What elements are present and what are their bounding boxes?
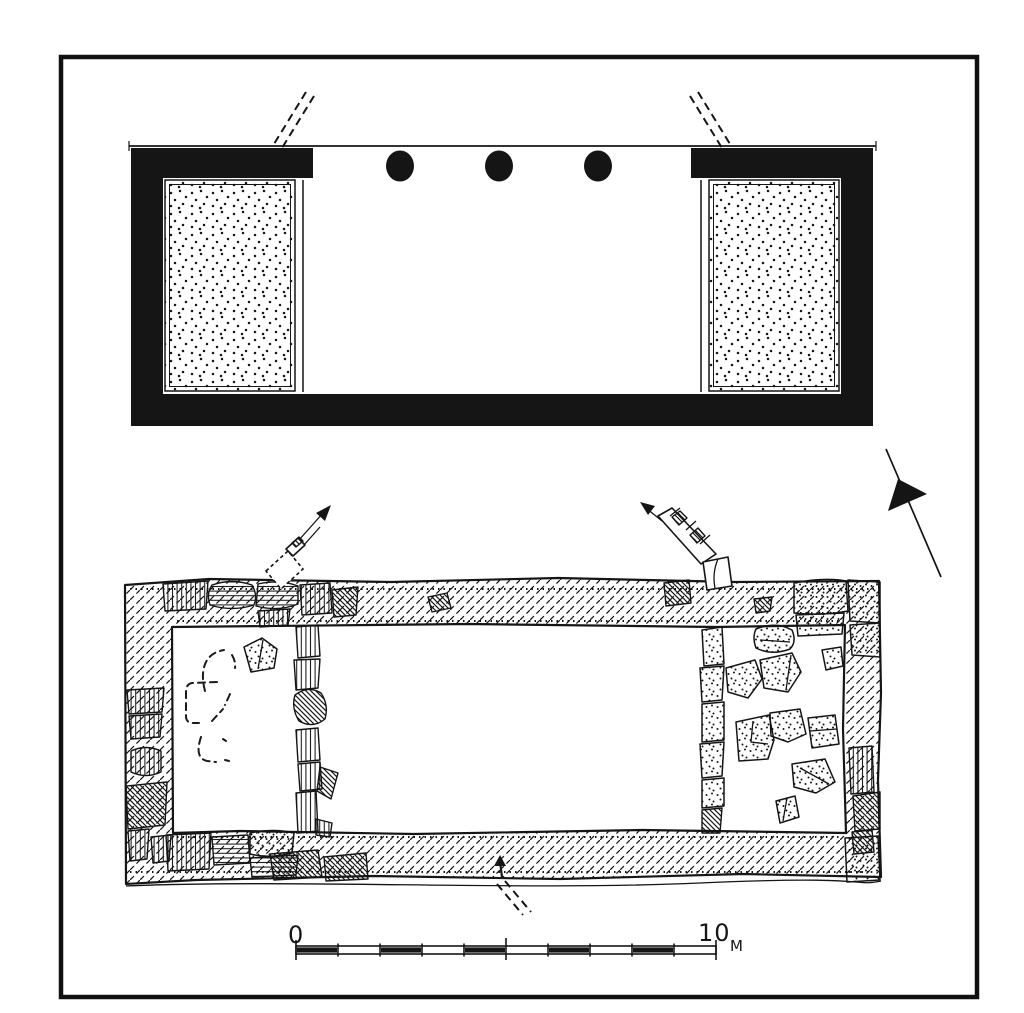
- section-line-right: [690, 92, 730, 148]
- stone: [212, 835, 250, 865]
- stone: [296, 728, 320, 762]
- stone: [776, 796, 799, 823]
- stone: [702, 702, 724, 742]
- scale-bar: 0 10 M: [288, 919, 743, 960]
- cross-wall-left: [294, 625, 338, 837]
- stone: [166, 833, 211, 871]
- column-marker: [584, 151, 612, 182]
- stone: [808, 715, 839, 748]
- stone: [294, 689, 327, 724]
- fallen-column-arrow-left: [266, 505, 331, 589]
- stone: [754, 597, 772, 613]
- drawing-sheet: 0 10 M: [0, 0, 1024, 1013]
- pit-outline: [212, 694, 230, 721]
- restored-plan: [129, 92, 876, 426]
- stone: [848, 580, 880, 623]
- stippled-platform-left: [165, 180, 295, 391]
- stone: [316, 819, 332, 837]
- stone: [129, 714, 162, 739]
- stone: [127, 688, 164, 714]
- pit-outline: [203, 650, 224, 691]
- platform-outline: [165, 180, 295, 391]
- platform-outline: [709, 180, 839, 391]
- fallen-column-arrow-right: [640, 502, 732, 590]
- stone: [760, 653, 801, 692]
- stone: [849, 746, 874, 794]
- stone: [131, 748, 161, 776]
- column-marker: [485, 151, 513, 182]
- stone: [208, 582, 255, 609]
- ground-line: [126, 880, 881, 886]
- scale-bar-filled-segment: [297, 947, 337, 952]
- stone: [296, 791, 318, 833]
- fallen-blocks: [726, 625, 843, 823]
- stone: [850, 623, 880, 657]
- stone: [664, 580, 691, 606]
- stone: [702, 627, 724, 666]
- left-room-features: [186, 638, 277, 762]
- stone: [324, 853, 368, 881]
- scale-bar-filled-segment: [465, 947, 505, 952]
- stone: [822, 647, 843, 670]
- scale-unit-label: M: [730, 937, 743, 955]
- section-line-left: [274, 92, 314, 148]
- stone: [845, 836, 880, 882]
- stone: [270, 850, 322, 880]
- stone: [163, 581, 208, 611]
- stone: [702, 778, 724, 808]
- stone: [256, 582, 298, 609]
- cross-wall-right: [700, 627, 724, 833]
- column-marker: [386, 151, 414, 182]
- wall-bottom: [131, 394, 873, 426]
- pit-outline: [186, 682, 217, 723]
- scale-bar-filled-segment: [549, 947, 589, 952]
- north-arrow-line: [886, 449, 941, 577]
- pit-outline: [223, 739, 229, 761]
- column-row: [386, 151, 612, 182]
- stone: [796, 613, 844, 636]
- scale-bar-graphic: [296, 938, 716, 960]
- scale-end-label: 10: [698, 919, 731, 947]
- stippled-platform-right: [709, 180, 839, 391]
- stone: [428, 593, 451, 612]
- fallen-column: [658, 508, 716, 564]
- scale-bar-filled-segment: [633, 947, 673, 952]
- stone: [700, 742, 724, 778]
- entrance-dash: [497, 884, 523, 915]
- stone: [726, 660, 762, 698]
- pit-outline: [232, 655, 235, 668]
- figure-canvas: 0 10 M: [0, 0, 1024, 1013]
- stone: [794, 579, 848, 614]
- stone: [317, 767, 338, 799]
- stone: [258, 609, 290, 627]
- excavation-plan: [125, 502, 881, 915]
- stone: [853, 792, 880, 831]
- stone: [700, 666, 724, 702]
- stone: [332, 587, 358, 617]
- stone: [736, 715, 774, 761]
- north-arrow-icon: [886, 449, 941, 577]
- wall-right: [841, 148, 873, 426]
- stone: [300, 583, 332, 615]
- north-arrow-head: [888, 479, 927, 511]
- pit-outline: [199, 737, 216, 762]
- stone: [126, 782, 167, 829]
- wall-left: [131, 148, 163, 426]
- scale-bar-filled-segment: [381, 947, 421, 952]
- stone: [128, 829, 149, 861]
- stone: [296, 625, 320, 658]
- stone: [702, 808, 722, 833]
- stone: [770, 709, 806, 742]
- wall-stones-top-right: [794, 579, 880, 657]
- stone: [294, 659, 320, 690]
- stone: [754, 625, 794, 652]
